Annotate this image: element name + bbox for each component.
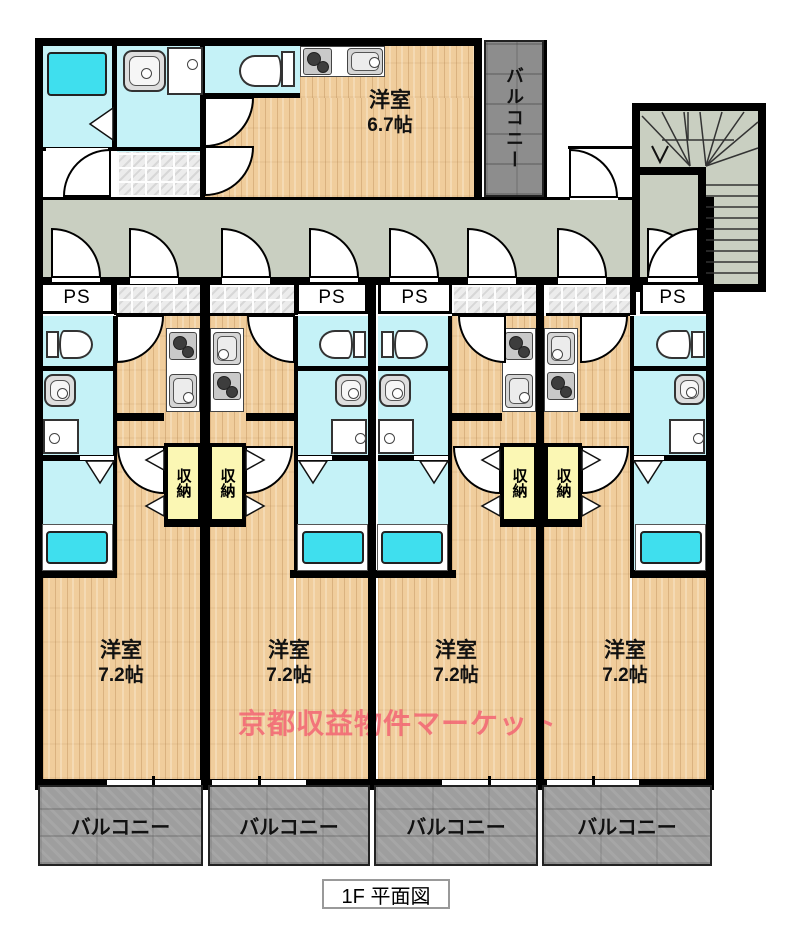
wall	[536, 277, 544, 790]
washer-dial	[49, 433, 60, 444]
top-entry-tile	[117, 152, 200, 197]
washbasin-icon	[335, 374, 367, 407]
door-opening	[222, 278, 270, 284]
wall	[546, 313, 630, 316]
wall	[246, 413, 294, 421]
wall	[113, 316, 117, 578]
wall	[35, 197, 570, 200]
faucet-dot	[348, 388, 359, 399]
room-label-unit1: 洋室 7.2帖	[61, 638, 181, 688]
watermark-text: 京都収益物件マーケット	[238, 702, 557, 742]
kitchen-sink-icon	[547, 332, 575, 365]
stove-icon	[213, 372, 241, 400]
washing-machine-icon	[167, 47, 203, 95]
storage-closet-unit4: 収納	[544, 443, 582, 523]
stove-icon	[505, 332, 533, 360]
wall	[35, 38, 482, 46]
ps-label: PS	[63, 287, 90, 309]
washer-dial	[693, 433, 704, 444]
balcony-top: バルコニー	[484, 40, 544, 197]
unit3-entry-tile	[452, 285, 536, 315]
room-label-top: 洋室 6.7帖	[330, 88, 450, 138]
washing-machine-icon	[43, 419, 79, 454]
pipe-space-3: PS	[378, 282, 452, 314]
washbasin-icon	[123, 50, 166, 92]
balcony-label: バルコニー	[71, 811, 171, 840]
faucet-dot	[519, 392, 530, 403]
stair-wall	[698, 175, 706, 284]
burner	[317, 61, 329, 73]
wall	[43, 366, 113, 371]
bathtub-icon	[47, 52, 107, 96]
ps-label: PS	[659, 287, 686, 309]
wall	[117, 313, 200, 316]
bathtub-icon	[302, 531, 364, 564]
stove-icon	[169, 332, 197, 360]
wall	[630, 285, 636, 315]
unit2-entry-tile	[210, 285, 294, 315]
wall	[117, 413, 164, 421]
storage-label: 収納	[173, 468, 194, 498]
faucet-dot	[57, 388, 68, 399]
room-name: 洋室	[396, 638, 516, 664]
faucet-dot	[686, 387, 697, 398]
toilet-tank-icon	[46, 331, 59, 358]
washing-machine-icon	[669, 419, 705, 454]
wall	[200, 277, 210, 790]
stove-icon	[547, 372, 575, 400]
room-size: 7.2帖	[396, 664, 516, 688]
wall	[568, 146, 634, 149]
room-size: 7.2帖	[229, 664, 349, 688]
toilet-tank-icon	[353, 331, 366, 358]
wall	[544, 40, 547, 197]
bathtub-icon	[46, 531, 108, 564]
caption-text: 1F 平面図	[342, 880, 431, 909]
toilet-tank-icon	[281, 51, 295, 87]
wall	[290, 570, 376, 578]
wall	[474, 38, 482, 198]
wall	[112, 46, 117, 147]
door-opening	[634, 456, 664, 460]
storage-label: 収納	[553, 468, 574, 498]
wall	[634, 366, 706, 371]
toilet-bowl-icon	[239, 55, 282, 87]
room-label-unit3: 洋室 7.2帖	[396, 638, 516, 688]
floor-plan: 京都収益物件マーケット	[0, 0, 800, 950]
unit1-entry-tile	[117, 285, 200, 315]
kitchen-sink-icon	[213, 332, 241, 365]
wall	[298, 366, 368, 371]
kitchen-sink-icon	[169, 374, 197, 408]
storage-closet-unit3: 収納	[500, 443, 538, 523]
balcony-unit3: バルコニー	[374, 785, 538, 866]
pipe-space-4: PS	[640, 282, 706, 314]
faucet-dot	[369, 57, 380, 68]
room-label-unit2: 洋室 7.2帖	[229, 638, 349, 688]
door-opening	[414, 456, 448, 460]
storage-closet-unit1: 収納	[164, 443, 202, 523]
wall	[630, 316, 634, 578]
washing-machine-icon	[331, 419, 367, 454]
bathtub-icon	[640, 531, 702, 564]
room-size: 7.2帖	[565, 664, 685, 688]
faucet-dot	[141, 68, 152, 79]
toilet-tank-icon	[381, 331, 394, 358]
storage-closet-unit2: 収納	[208, 443, 246, 523]
burner	[182, 346, 194, 358]
ps-label: PS	[401, 287, 428, 309]
washbasin-icon	[44, 374, 76, 407]
wall	[378, 366, 448, 371]
door-opening	[46, 148, 108, 151]
burner	[518, 346, 530, 358]
wall	[452, 413, 502, 421]
stair-wall	[632, 103, 766, 111]
entrance-door-arc	[570, 150, 617, 197]
balcony-unit2: バルコニー	[208, 785, 370, 866]
wall	[114, 285, 117, 315]
faucet-dot	[218, 349, 229, 360]
door-arc	[64, 150, 110, 196]
bathtub-icon	[381, 531, 443, 564]
pipe-space-1: PS	[40, 282, 114, 314]
kitchen-sink-icon	[505, 374, 533, 408]
washer-dial	[187, 59, 198, 70]
wall	[448, 316, 452, 578]
wall	[205, 93, 300, 98]
wall	[580, 413, 630, 421]
balcony-label: バルコニー	[239, 811, 339, 840]
room-name: 洋室	[61, 638, 181, 664]
washer-dial	[355, 433, 366, 444]
stair-wall	[632, 103, 640, 292]
ps-label: PS	[318, 287, 345, 309]
washing-machine-icon	[378, 419, 414, 454]
stair-wall	[634, 167, 706, 175]
toilet-bowl-icon	[319, 330, 353, 359]
wall	[38, 570, 117, 578]
unit4-entry-tile	[547, 285, 630, 315]
room-label-unit4: 洋室 7.2帖	[565, 638, 685, 688]
wall	[368, 277, 376, 790]
door-opening	[468, 278, 516, 284]
faucet-dot	[552, 349, 563, 360]
washbasin-icon	[674, 374, 705, 405]
door-opening	[80, 456, 114, 460]
wall	[210, 313, 294, 316]
door-opening	[298, 456, 332, 460]
door-opening	[558, 278, 606, 284]
plan-caption: 1F 平面図	[322, 879, 450, 909]
balcony-label: バルコニー	[577, 811, 677, 840]
wall	[372, 570, 456, 578]
wall	[452, 313, 536, 316]
room-name: 洋室	[330, 88, 450, 114]
faucet-dot	[392, 388, 403, 399]
stair-wall	[758, 103, 766, 292]
balcony-unit4: バルコニー	[542, 785, 712, 866]
balcony-label: バルコニー	[501, 66, 527, 171]
wall	[706, 197, 714, 790]
toilet-bowl-icon	[656, 330, 691, 359]
balcony-label: バルコニー	[406, 811, 506, 840]
toilet-bowl-icon	[59, 330, 93, 359]
kitchen-sink-icon	[347, 48, 383, 75]
toilet-tank-icon	[691, 331, 705, 358]
washer-dial	[384, 433, 395, 444]
wall	[630, 570, 714, 578]
corridor	[43, 200, 698, 277]
burner	[560, 386, 572, 398]
room-size: 7.2帖	[61, 664, 181, 688]
pipe-space-2: PS	[296, 282, 368, 314]
faucet-dot	[183, 392, 194, 403]
burner	[226, 386, 238, 398]
storage-label: 収納	[509, 468, 530, 498]
balcony-unit1: バルコニー	[38, 785, 203, 866]
storage-label: 収納	[217, 468, 238, 498]
door-opening	[130, 278, 178, 284]
room-name: 洋室	[229, 638, 349, 664]
room-size: 6.7帖	[330, 114, 450, 138]
stove-icon	[303, 48, 332, 75]
toilet-bowl-icon	[394, 330, 428, 359]
room-name: 洋室	[565, 638, 685, 664]
washbasin-icon	[379, 374, 411, 407]
